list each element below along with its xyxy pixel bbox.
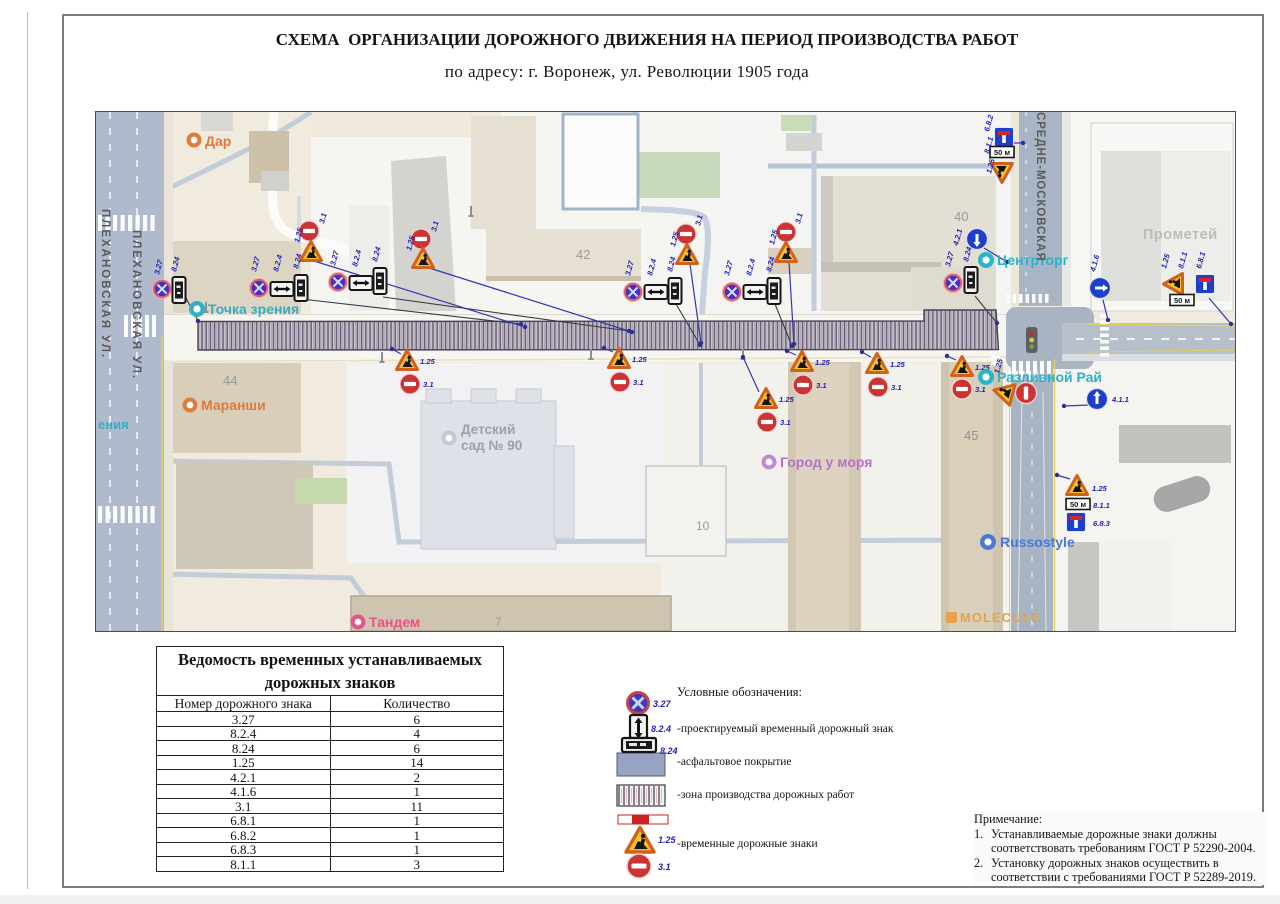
- svg-text:1.25: 1.25: [420, 357, 436, 366]
- svg-text:Точка зрения: Точка зрения: [208, 301, 299, 317]
- svg-text:Russostyle: Russostyle: [1000, 534, 1075, 550]
- svg-text:Тандем: Тандем: [369, 614, 420, 630]
- svg-text:8.1.1: 8.1.1: [1093, 501, 1110, 510]
- svg-text:1.25: 1.25: [890, 360, 906, 369]
- svg-text:Прометей: Прометей: [1143, 227, 1218, 243]
- svg-text:42: 42: [576, 247, 590, 262]
- svg-text:40: 40: [954, 209, 968, 224]
- svg-text:3.1: 3.1: [633, 378, 644, 387]
- svg-text:Разливной Рай: Разливной Рай: [997, 369, 1102, 385]
- svg-text:1.25: 1.25: [815, 358, 831, 367]
- svg-text:44: 44: [223, 373, 237, 388]
- svg-text:4.1.1: 4.1.1: [1111, 395, 1129, 404]
- svg-text:10: 10: [696, 519, 710, 533]
- svg-text:ения: ения: [98, 417, 129, 432]
- svg-text:Центрторг: Центрторг: [997, 252, 1069, 268]
- svg-text:3.1: 3.1: [975, 385, 986, 394]
- svg-text:3.1: 3.1: [423, 380, 434, 389]
- svg-text:1.25: 1.25: [779, 395, 795, 404]
- svg-text:45: 45: [964, 428, 978, 443]
- svg-text:Детский: Детский: [461, 422, 515, 437]
- svg-text:Дар: Дар: [205, 133, 231, 149]
- svg-text:СРЕДНЕ-МОСКОВСКАЯ: СРЕДНЕ-МОСКОВСКАЯ: [1034, 112, 1046, 262]
- svg-text:1.25: 1.25: [658, 835, 677, 845]
- svg-text:3.27: 3.27: [653, 699, 672, 709]
- svg-text:ПЛЕХАНОВСКАЯ УЛ.: ПЛЕХАНОВСКАЯ УЛ.: [130, 230, 142, 380]
- svg-text:ПЛЕХАНОВСКАЯ УЛ.: ПЛЕХАНОВСКАЯ УЛ.: [99, 209, 111, 359]
- svg-text:8.24: 8.24: [660, 746, 678, 756]
- svg-text:Маранши: Маранши: [201, 397, 266, 413]
- svg-text:1.25: 1.25: [1092, 484, 1108, 493]
- svg-text:3.1: 3.1: [891, 383, 902, 392]
- svg-text:сад № 90: сад № 90: [461, 438, 522, 453]
- svg-text:3.1: 3.1: [658, 862, 671, 872]
- svg-text:3.1: 3.1: [780, 418, 791, 427]
- svg-text:7: 7: [495, 615, 502, 629]
- svg-text:8.2.4: 8.2.4: [651, 724, 671, 734]
- svg-text:Город у моря: Город у моря: [780, 454, 872, 470]
- svg-text:MOLECULE: MOLECULE: [960, 610, 1041, 625]
- svg-text:1.25: 1.25: [632, 355, 648, 364]
- svg-text:6.8.3: 6.8.3: [1093, 519, 1111, 528]
- svg-text:3.1: 3.1: [816, 381, 827, 390]
